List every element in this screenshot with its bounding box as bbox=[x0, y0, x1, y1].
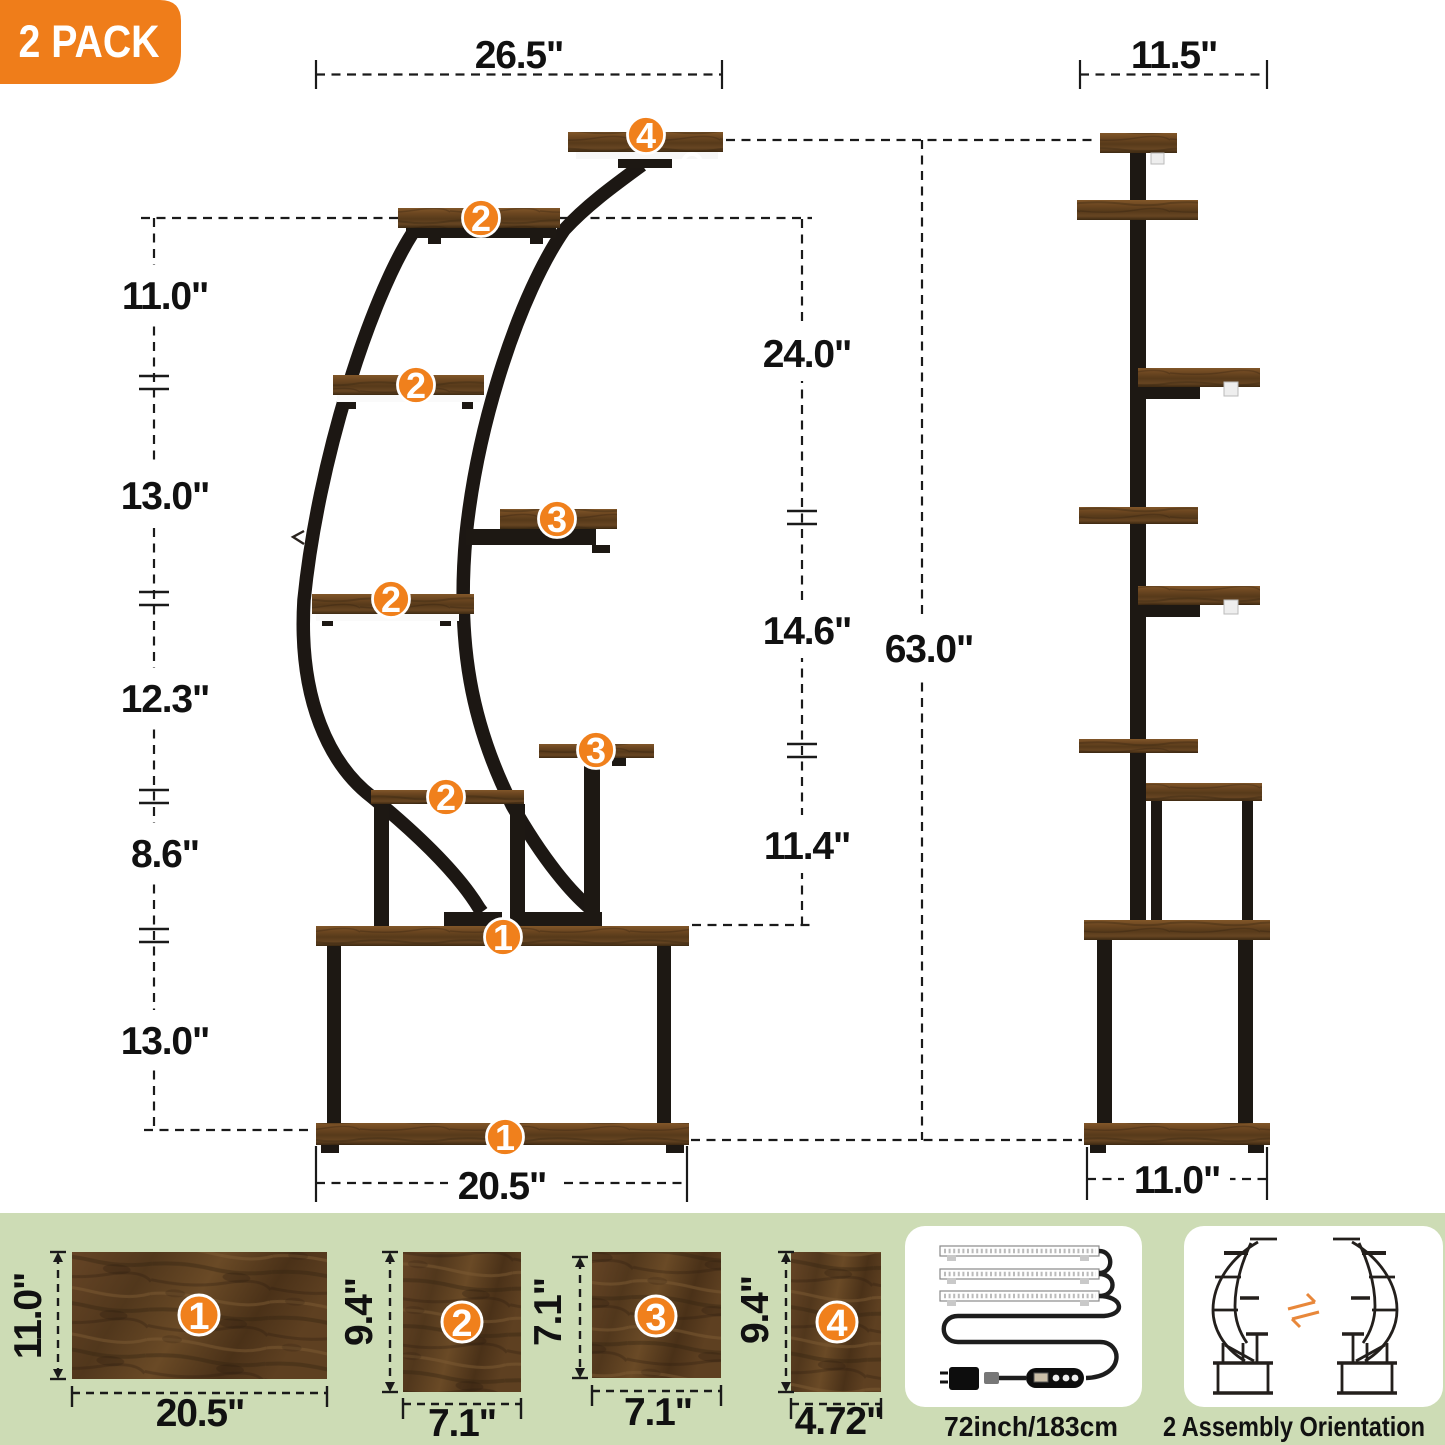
svg-text:7.1": 7.1" bbox=[527, 1278, 570, 1346]
svg-text:2: 2 bbox=[436, 777, 456, 818]
svg-text:13.0": 13.0" bbox=[121, 475, 209, 518]
svg-text:2: 2 bbox=[381, 579, 401, 620]
svg-text:11.0": 11.0" bbox=[7, 1273, 50, 1359]
svg-text:3: 3 bbox=[586, 730, 606, 771]
svg-text:3: 3 bbox=[547, 499, 567, 540]
svg-text:2 PACK: 2 PACK bbox=[19, 16, 160, 67]
svg-text:14.6": 14.6" bbox=[763, 610, 851, 653]
svg-text:4: 4 bbox=[636, 115, 656, 156]
svg-text:11.5": 11.5" bbox=[1131, 34, 1217, 77]
svg-text:4: 4 bbox=[826, 1303, 847, 1345]
svg-text:2: 2 bbox=[451, 1303, 472, 1345]
svg-text:63.0": 63.0" bbox=[885, 628, 973, 671]
svg-text:8.6": 8.6" bbox=[131, 833, 199, 876]
svg-text:72inch/183cm: 72inch/183cm bbox=[944, 1411, 1118, 1442]
svg-text:26.5": 26.5" bbox=[475, 34, 563, 77]
svg-text:11.4": 11.4" bbox=[764, 825, 850, 868]
svg-text:7.1": 7.1" bbox=[624, 1391, 692, 1434]
svg-text:11.0": 11.0" bbox=[122, 275, 208, 318]
svg-text:9.4": 9.4" bbox=[338, 1278, 381, 1346]
svg-text:2: 2 bbox=[406, 365, 426, 406]
svg-text:24.0": 24.0" bbox=[763, 333, 851, 376]
svg-text:3: 3 bbox=[645, 1297, 666, 1339]
svg-text:2 Assembly Orientation: 2 Assembly Orientation bbox=[1163, 1411, 1425, 1442]
svg-text:2: 2 bbox=[471, 198, 491, 239]
svg-text:12.3": 12.3" bbox=[121, 678, 209, 721]
svg-text:1: 1 bbox=[188, 1296, 209, 1338]
svg-text:13.0": 13.0" bbox=[121, 1020, 209, 1063]
svg-text:9.4": 9.4" bbox=[734, 1276, 777, 1344]
svg-text:7.1": 7.1" bbox=[428, 1402, 496, 1445]
svg-text:20.5": 20.5" bbox=[458, 1165, 546, 1208]
svg-text:4.72": 4.72" bbox=[795, 1400, 883, 1443]
svg-text:20.5": 20.5" bbox=[156, 1392, 244, 1435]
svg-text:11.0": 11.0" bbox=[1134, 1159, 1220, 1202]
svg-text:1: 1 bbox=[493, 917, 513, 958]
svg-text:1: 1 bbox=[495, 1117, 515, 1158]
